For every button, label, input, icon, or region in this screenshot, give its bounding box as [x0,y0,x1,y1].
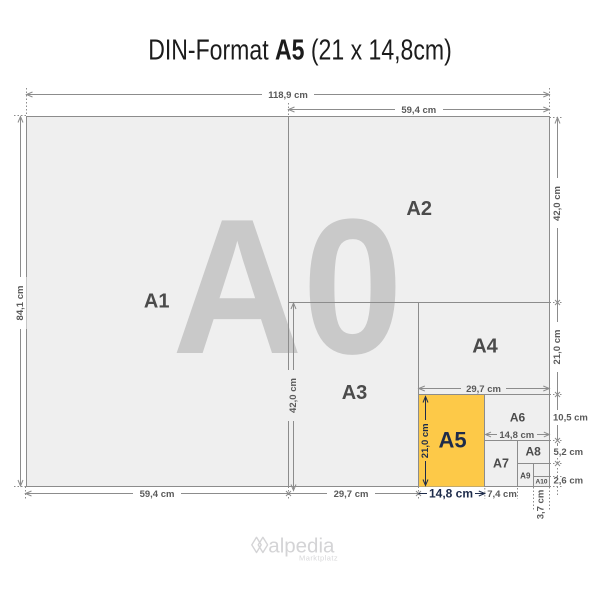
svg-text:42,0 cm: 42,0 cm [288,378,299,413]
svg-text:14,8 cm: 14,8 cm [429,486,473,500]
svg-text:A3: A3 [342,382,368,404]
svg-text:A6: A6 [510,410,526,424]
svg-text:42,0 cm: 42,0 cm [552,186,563,221]
svg-text:2,6 cm: 2,6 cm [554,476,584,487]
svg-text:59,4 cm: 59,4 cm [401,105,436,116]
svg-text:21,0 cm: 21,0 cm [552,330,563,365]
svg-text:7,4 cm: 7,4 cm [487,489,517,500]
svg-text:29,7 cm: 29,7 cm [466,384,501,395]
svg-text:5,2 cm: 5,2 cm [554,447,584,458]
svg-text:3,7 cm: 3,7 cm [535,490,546,520]
svg-text:84,1 cm: 84,1 cm [15,286,26,321]
svg-text:14,8 cm: 14,8 cm [499,430,534,441]
svg-text:59,4 cm: 59,4 cm [140,489,175,500]
svg-text:A10: A10 [536,479,548,486]
svg-text:A1: A1 [144,291,170,313]
svg-text:118,9 cm: 118,9 cm [268,90,308,101]
svg-text:A0: A0 [172,179,403,395]
svg-text:21,0 cm: 21,0 cm [420,423,431,458]
svg-text:29,7 cm: 29,7 cm [334,489,369,500]
svg-text:A2: A2 [406,198,432,220]
svg-text:A8: A8 [526,444,542,458]
svg-text:10,5 cm: 10,5 cm [553,413,588,424]
svg-text:A7: A7 [493,456,509,470]
svg-text:Marktplatz: Marktplatz [299,553,338,562]
svg-text:A4: A4 [472,335,498,357]
svg-text:DIN-Format A5 (21 x 14,8cm): DIN-Format A5 (21 x 14,8cm) [148,33,452,66]
svg-text:A9: A9 [520,471,531,480]
svg-text:A5: A5 [438,428,466,453]
